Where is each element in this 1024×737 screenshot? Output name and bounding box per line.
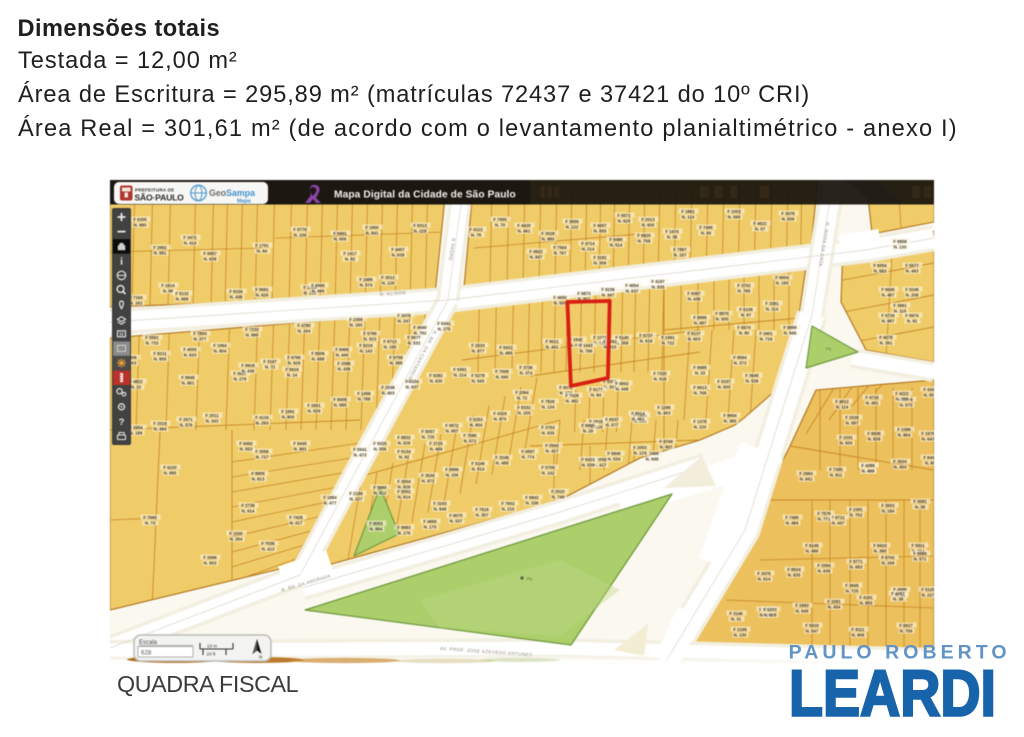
- svg-text:GeoSampa: GeoSampa: [209, 188, 255, 198]
- svg-text:F 6537: F 6537: [605, 417, 619, 422]
- svg-text:F 4716: F 4716: [865, 395, 879, 400]
- svg-text:N. 587: N. 587: [846, 421, 859, 426]
- svg-text:F 2662: F 2662: [153, 245, 167, 250]
- svg-text:F 2696: F 2696: [203, 555, 217, 560]
- svg-text:F 9918: F 9918: [241, 363, 255, 368]
- svg-text:N. 725: N. 725: [422, 435, 435, 440]
- svg-text:N. 347: N. 347: [602, 293, 615, 298]
- svg-text:N. 637: N. 637: [406, 385, 419, 390]
- svg-text:F 6796: F 6796: [287, 355, 301, 360]
- svg-text:F 5919: F 5919: [805, 623, 819, 628]
- svg-text:F 7804: F 7804: [193, 331, 207, 336]
- svg-text:F 2013: F 2013: [641, 217, 655, 222]
- svg-text:N. 848: N. 848: [434, 507, 447, 512]
- svg-text:F 6825: F 6825: [637, 233, 651, 238]
- svg-text:N. 169: N. 169: [882, 561, 895, 566]
- svg-text:F 4078: F 4078: [879, 335, 893, 340]
- svg-text:N. 505: N. 505: [716, 317, 729, 322]
- svg-text:N. 788: N. 788: [358, 397, 371, 402]
- svg-text:N. 208: N. 208: [906, 293, 919, 298]
- svg-text:F 3181: F 3181: [593, 255, 607, 260]
- svg-text:N. 716: N. 716: [760, 337, 773, 342]
- svg-text:F 9779: F 9779: [293, 227, 307, 232]
- svg-text:N. 683: N. 683: [850, 565, 863, 570]
- svg-text:N. 495: N. 495: [500, 351, 513, 356]
- svg-text:N. 461: N. 461: [518, 229, 531, 234]
- svg-text:F 9899: F 9899: [783, 325, 797, 330]
- svg-text:N. 618: N. 618: [640, 339, 653, 344]
- svg-text:F 4222: F 4222: [895, 391, 909, 396]
- svg-text:N. 499: N. 499: [862, 469, 875, 474]
- svg-text:N. 928: N. 928: [398, 485, 411, 490]
- svg-text:N. 985: N. 985: [164, 471, 177, 476]
- svg-text:N. 847: N. 847: [530, 255, 543, 260]
- svg-text:N. 907: N. 907: [660, 445, 673, 450]
- svg-text:N. 98: N. 98: [163, 289, 174, 294]
- svg-text:N. 749: N. 749: [552, 495, 565, 500]
- svg-text:N. 92: N. 92: [907, 319, 918, 324]
- svg-text:N. 73: N. 73: [145, 521, 156, 526]
- svg-text:F 4612: F 4612: [835, 399, 849, 404]
- svg-text:LEARDI: LEARDI: [789, 658, 996, 730]
- svg-text:F 7616: F 7616: [475, 507, 489, 512]
- svg-text:F 3147: F 3147: [263, 359, 277, 364]
- svg-text:N. 941: N. 941: [366, 231, 379, 236]
- svg-text:F 9282: F 9282: [429, 373, 443, 378]
- svg-text:N. 106: N. 106: [294, 233, 307, 238]
- svg-text:F 8070: F 8070: [449, 513, 463, 518]
- svg-text:F 7485: F 7485: [785, 515, 799, 520]
- svg-text:N. 417: N. 417: [290, 521, 303, 526]
- svg-text:N. 388: N. 388: [390, 361, 403, 366]
- svg-text:F 7008: F 7008: [495, 369, 509, 374]
- svg-text:N. 31: N. 31: [731, 617, 742, 622]
- svg-text:F 5840: F 5840: [607, 451, 621, 456]
- svg-text:F 1642: F 1642: [569, 337, 583, 342]
- svg-text:F 6447: F 6447: [923, 455, 934, 460]
- svg-text:N. 97: N. 97: [741, 313, 752, 318]
- svg-text:F 3736: F 3736: [519, 365, 533, 370]
- svg-text:N. 114: N. 114: [682, 215, 695, 220]
- svg-text:N. 454: N. 454: [894, 465, 907, 470]
- svg-text:N. 804: N. 804: [214, 349, 227, 354]
- svg-text:N. 229: N. 229: [414, 229, 427, 234]
- svg-text:F 6995: F 6995: [581, 423, 595, 428]
- svg-text:N. 655: N. 655: [594, 229, 607, 234]
- svg-text:F 6966: F 6966: [311, 283, 325, 288]
- svg-text:F 9111: F 9111: [852, 627, 866, 632]
- svg-text:F 9236: F 9236: [601, 287, 615, 292]
- svg-text:N. 835: N. 835: [652, 285, 665, 290]
- svg-text:F 6737: F 6737: [639, 333, 653, 338]
- svg-text:N. 70: N. 70: [495, 223, 506, 228]
- svg-text:F 1861: F 1861: [681, 209, 695, 214]
- svg-text:F 1474: F 1474: [665, 229, 679, 234]
- svg-text:F 5577: F 5577: [905, 263, 919, 268]
- svg-text:N. 84: N. 84: [591, 393, 602, 398]
- svg-text:F 4657: F 4657: [593, 223, 607, 228]
- svg-text:N. 514: N. 514: [610, 243, 623, 248]
- svg-text:N. 774: N. 774: [522, 455, 535, 460]
- svg-text:N. 585: N. 585: [334, 403, 347, 408]
- svg-text:N. 380: N. 380: [724, 419, 737, 424]
- svg-text:F 7164: F 7164: [129, 295, 143, 300]
- svg-text:N. 38: N. 38: [893, 597, 904, 602]
- svg-text:F 3530: F 3530: [421, 473, 435, 478]
- svg-text:N. 606: N. 606: [334, 237, 347, 242]
- svg-text:N. 227: N. 227: [350, 497, 363, 502]
- svg-text:F 5146: F 5146: [471, 461, 485, 466]
- svg-text:N. 60: N. 60: [701, 231, 712, 236]
- svg-text:N. 785: N. 785: [738, 289, 751, 294]
- svg-text:F 1296: F 1296: [657, 405, 671, 410]
- svg-text:N. 486: N. 486: [806, 549, 819, 554]
- svg-text:Mapa Digital da Cidade de São: Mapa Digital da Cidade de São Paulo: [334, 190, 516, 201]
- svg-text:F 1443: F 1443: [579, 343, 593, 348]
- svg-text:N. 786: N. 786: [580, 349, 593, 354]
- svg-text:F 5541: F 5541: [353, 447, 367, 452]
- svg-text:F 8771: F 8771: [849, 559, 863, 564]
- svg-text:N. 503: N. 503: [204, 561, 217, 566]
- svg-text:N. 977: N. 977: [472, 349, 485, 354]
- svg-text:N. 556: N. 556: [374, 447, 387, 452]
- svg-text:F 4000: F 4000: [183, 347, 197, 352]
- svg-text:N. 494: N. 494: [154, 427, 167, 432]
- svg-text:?: ?: [119, 417, 125, 428]
- svg-text:F 8408: F 8408: [333, 397, 347, 402]
- svg-text:N. 125: N. 125: [634, 451, 647, 456]
- svg-text:N. 176: N. 176: [398, 531, 411, 536]
- svg-text:N. 491: N. 491: [866, 401, 879, 406]
- svg-text:N. 812: N. 812: [374, 491, 387, 496]
- svg-text:F 9011: F 9011: [545, 339, 559, 344]
- svg-text:F 4622: F 4622: [753, 221, 767, 226]
- svg-text:N. 143: N. 143: [360, 349, 373, 354]
- svg-text:F 4134: F 4134: [255, 415, 269, 420]
- svg-text:N. 752: N. 752: [850, 513, 863, 518]
- svg-text:F 5337: F 5337: [717, 379, 731, 384]
- svg-text:N. 768: N. 768: [694, 391, 707, 396]
- svg-text:F 4942: F 4942: [615, 381, 629, 386]
- svg-text:N. 454: N. 454: [828, 605, 841, 610]
- svg-text:F 3394: F 3394: [817, 563, 831, 568]
- svg-text:N. 767: N. 767: [554, 251, 567, 256]
- svg-text:F 2391: F 2391: [849, 507, 863, 512]
- svg-text:N. 80: N. 80: [739, 331, 750, 336]
- svg-text:N. 355: N. 355: [896, 397, 909, 402]
- svg-text:F 2964: F 2964: [799, 471, 813, 476]
- svg-text:F 9137: F 9137: [687, 331, 701, 336]
- svg-text:N. 165: N. 165: [384, 345, 397, 350]
- svg-text:F 9492: F 9492: [239, 441, 253, 446]
- svg-text:N. 954: N. 954: [470, 423, 483, 428]
- svg-text:F 2971: F 2971: [179, 417, 193, 422]
- svg-text:F 3961: F 3961: [893, 303, 907, 308]
- svg-text:Escala: Escala: [139, 640, 158, 646]
- svg-text:F 4420: F 4420: [517, 223, 531, 228]
- svg-text:F 9713: F 9713: [383, 339, 397, 344]
- svg-text:N. 572: N. 572: [464, 439, 477, 444]
- svg-text:N. 164: N. 164: [298, 329, 311, 334]
- svg-text:F 2738: F 2738: [241, 503, 255, 508]
- svg-text:N. 473: N. 473: [354, 453, 367, 458]
- svg-text:F 3386: F 3386: [337, 361, 351, 366]
- svg-text:N. 279: N. 279: [234, 377, 247, 382]
- svg-text:F 1233: F 1233: [763, 607, 777, 612]
- svg-text:N. 438: N. 438: [688, 297, 701, 302]
- svg-text:F 6220: F 6220: [163, 465, 177, 470]
- svg-text:N. 504: N. 504: [924, 393, 934, 398]
- svg-text:F 8104: F 8104: [229, 289, 243, 294]
- svg-text:F 1417: F 1417: [343, 251, 357, 256]
- svg-text:F 1614: F 1614: [161, 283, 175, 288]
- svg-text:N. 293: N. 293: [256, 421, 269, 426]
- svg-text:F 8832: F 8832: [397, 435, 411, 440]
- svg-text:N. 555: N. 555: [554, 301, 567, 306]
- svg-text:N. 571: N. 571: [914, 557, 927, 562]
- svg-text:N. 220: N. 220: [694, 425, 707, 430]
- svg-text:F 2359: F 2359: [349, 317, 363, 322]
- svg-text:F 7580: F 7580: [463, 433, 477, 438]
- svg-text:F 4822: F 4822: [129, 379, 143, 384]
- svg-text:F 5960: F 5960: [373, 485, 387, 490]
- svg-text:N. 532: N. 532: [408, 341, 421, 346]
- svg-text:N. 214: N. 214: [582, 247, 595, 252]
- svg-text:F 5619: F 5619: [285, 367, 299, 372]
- svg-text:N. 92: N. 92: [399, 455, 410, 460]
- svg-text:N. 835: N. 835: [788, 573, 801, 578]
- svg-text:F 4650: F 4650: [553, 295, 567, 300]
- svg-text:F 8514: F 8514: [631, 411, 645, 416]
- svg-text:F 6604: F 6604: [775, 275, 789, 280]
- svg-text:F 8905: F 8905: [251, 471, 265, 476]
- svg-text:N. 82: N. 82: [345, 257, 356, 262]
- svg-text:F 5552: F 5552: [397, 489, 411, 494]
- svg-text:F 3319: F 3319: [153, 421, 167, 426]
- svg-text:N. 570: N. 570: [900, 403, 913, 408]
- svg-text:F 3478: F 3478: [781, 211, 795, 216]
- svg-text:F 8474: F 8474: [737, 325, 751, 330]
- svg-text:N. 914: N. 914: [472, 467, 485, 472]
- svg-text:F 2053: F 2053: [633, 445, 647, 450]
- svg-text:F 5799: F 5799: [363, 331, 377, 336]
- svg-text:F 3753: F 3753: [541, 425, 555, 430]
- svg-text:F 3725: F 3725: [429, 441, 443, 446]
- svg-text:N. 114: N. 114: [766, 307, 779, 312]
- svg-text:N. 805: N. 805: [154, 357, 167, 362]
- svg-text:F 7499: F 7499: [699, 225, 713, 230]
- svg-text:N. 413: N. 413: [262, 547, 275, 552]
- svg-text:F 9572: F 9572: [445, 423, 459, 428]
- svg-text:N. 717: N. 717: [256, 455, 269, 460]
- svg-text:F 1930: F 1930: [229, 531, 243, 536]
- svg-text:N. 487: N. 487: [694, 321, 707, 326]
- svg-text:N. 461: N. 461: [632, 417, 645, 422]
- svg-text:N. 864: N. 864: [898, 433, 911, 438]
- svg-text:N. 946: N. 946: [784, 331, 797, 336]
- svg-text:i: i: [120, 256, 123, 267]
- svg-text:N. 980: N. 980: [134, 223, 147, 228]
- svg-text:N. 980: N. 980: [542, 237, 555, 242]
- svg-text:F 1456: F 1456: [357, 391, 371, 396]
- svg-text:F 7428: F 7428: [289, 515, 303, 520]
- svg-text:F 7536: F 7536: [261, 541, 275, 546]
- svg-text:F 6571: F 6571: [617, 213, 631, 218]
- svg-text:N. 488: N. 488: [496, 461, 509, 466]
- svg-text:N. 540: N. 540: [472, 379, 485, 384]
- svg-text:F 9873: F 9873: [577, 291, 591, 296]
- svg-text:F 3702: F 3702: [737, 283, 751, 288]
- svg-text:F 7955: F 7955: [493, 217, 507, 222]
- svg-text:N. 357: N. 357: [476, 513, 489, 518]
- svg-text:N. 813: N. 813: [252, 477, 265, 482]
- svg-text:N. 811: N. 811: [830, 473, 843, 478]
- svg-text:N. 523: N. 523: [364, 337, 377, 342]
- svg-text:N. 190: N. 190: [350, 323, 363, 328]
- svg-text:N. 130: N. 130: [894, 245, 907, 250]
- svg-text:N. 463: N. 463: [382, 391, 395, 396]
- svg-text:N. 156: N. 156: [446, 473, 459, 478]
- svg-text:F 6999: F 6999: [445, 467, 459, 472]
- svg-text:N. 336: N. 336: [526, 501, 539, 506]
- svg-text:F 3243: F 3243: [433, 501, 447, 506]
- svg-text:F 5057: F 5057: [421, 429, 435, 434]
- svg-text:F 9391: F 9391: [453, 367, 467, 372]
- svg-text:F 9313: F 9313: [413, 223, 427, 228]
- svg-text:N. 186: N. 186: [130, 431, 143, 436]
- svg-text:N. 583: N. 583: [874, 269, 887, 274]
- svg-text:F 5278: F 5278: [471, 373, 485, 378]
- svg-text:N. 941: N. 941: [800, 477, 813, 482]
- svg-text:N. 725: N. 725: [846, 589, 859, 594]
- svg-text:F 3281: F 3281: [827, 599, 841, 604]
- svg-text:N. 929: N. 929: [288, 361, 301, 366]
- svg-text:F 8870: F 8870: [715, 311, 729, 316]
- svg-text:10 m: 10 m: [207, 644, 217, 649]
- svg-text:Pq: Pq: [826, 346, 831, 351]
- svg-text:N. 130: N. 130: [734, 633, 747, 638]
- svg-text:F 3476: F 3476: [757, 571, 771, 576]
- svg-text:F 2491: F 2491: [661, 335, 675, 340]
- svg-text:N. 626: N. 626: [256, 293, 269, 298]
- svg-text:F 3012: F 3012: [381, 275, 395, 280]
- svg-text:F 4191: F 4191: [859, 595, 873, 600]
- svg-text:F 1791: F 1791: [255, 243, 269, 248]
- svg-text:N. 493: N. 493: [906, 269, 919, 274]
- svg-text:N. 633: N. 633: [184, 353, 197, 358]
- svg-text:F 8053: F 8053: [369, 521, 383, 526]
- svg-text:N. 574: N. 574: [360, 283, 373, 288]
- svg-text:F 1003: F 1003: [727, 209, 741, 214]
- svg-text:F 1064: F 1064: [213, 343, 227, 348]
- svg-text:F 6109: F 6109: [739, 307, 753, 312]
- svg-text:F 7365: F 7365: [829, 467, 843, 472]
- svg-text:N. 500: N. 500: [718, 385, 731, 390]
- svg-text:F 2601: F 2601: [307, 403, 321, 408]
- svg-text:N. 590: N. 590: [728, 215, 741, 220]
- svg-text:F 9445: F 9445: [293, 441, 307, 446]
- svg-text:N. 870: N. 870: [494, 417, 507, 422]
- svg-text:F 6305: F 6305: [133, 217, 147, 222]
- svg-text:F 6974: F 6974: [905, 313, 919, 318]
- svg-text:F 9654: F 9654: [723, 413, 737, 418]
- svg-text:F 3081: F 3081: [913, 499, 927, 504]
- svg-text:M: M: [119, 332, 123, 338]
- svg-text:N. 14: N. 14: [287, 373, 298, 378]
- svg-text:N. 33: N. 33: [695, 371, 706, 376]
- svg-text:N. 391: N. 391: [880, 341, 893, 346]
- svg-text:N. 643: N. 643: [922, 437, 934, 442]
- svg-text:N. 500: N. 500: [840, 441, 853, 446]
- svg-text:F 8506: F 8506: [311, 351, 325, 356]
- svg-text:F 6613: F 6613: [693, 385, 707, 390]
- svg-text:N. 914: N. 914: [242, 509, 255, 514]
- svg-text:N. 417: N. 417: [546, 449, 559, 454]
- svg-text:N. 547: N. 547: [806, 629, 819, 634]
- svg-text:F 6341: F 6341: [437, 321, 451, 326]
- svg-text:F 8983: F 8983: [397, 525, 411, 530]
- svg-text:F 7576: F 7576: [817, 511, 831, 516]
- svg-text:N. 377: N. 377: [194, 337, 207, 342]
- svg-text:F 2683: F 2683: [795, 603, 809, 608]
- svg-text:N. 438: N. 438: [230, 295, 243, 300]
- svg-text:F 1378: F 1378: [693, 419, 707, 424]
- svg-text:N. 529: N. 529: [308, 409, 321, 414]
- svg-text:N. 614: N. 614: [758, 577, 771, 582]
- svg-text:F 8211: F 8211: [153, 351, 167, 356]
- svg-text:N. 414: N. 414: [184, 241, 197, 246]
- svg-text:N. 447: N. 447: [832, 521, 845, 526]
- svg-text:F 2038: F 2038: [381, 385, 395, 390]
- svg-text:F 2389: F 2389: [897, 427, 911, 432]
- svg-text:N. 29: N. 29: [583, 429, 594, 434]
- svg-text:F 5253: F 5253: [469, 417, 483, 422]
- svg-text:N. 987: N. 987: [882, 319, 895, 324]
- svg-text:N. 142: N. 142: [542, 471, 555, 476]
- svg-text:N. 914: N. 914: [398, 495, 411, 500]
- svg-text:N. 157: N. 157: [674, 253, 687, 258]
- svg-text:F 7428: F 7428: [565, 393, 579, 398]
- svg-text:N. 972: N. 972: [422, 479, 435, 484]
- svg-text:F 3471: F 3471: [183, 235, 197, 240]
- svg-text:F 7902: F 7902: [501, 501, 515, 506]
- svg-text:F 9577: F 9577: [407, 335, 421, 340]
- svg-text:F 7564: F 7564: [553, 245, 567, 250]
- svg-text:F 5709: F 5709: [541, 465, 555, 470]
- svg-text:N. 162: N. 162: [130, 301, 143, 306]
- svg-text:F 4348: F 4348: [923, 387, 934, 392]
- svg-text:F 3454: F 3454: [129, 425, 143, 430]
- svg-text:N. 484: N. 484: [786, 521, 799, 526]
- svg-text:N. 462: N. 462: [566, 399, 579, 404]
- svg-text:F 7233: F 7233: [245, 327, 259, 332]
- svg-text:F 8945: F 8945: [181, 375, 195, 380]
- svg-text:N. 38: N. 38: [915, 505, 926, 510]
- svg-text:F 4319: F 4319: [493, 411, 507, 416]
- svg-text:F 2064: F 2064: [515, 390, 529, 395]
- svg-text:N. 495: N. 495: [312, 289, 325, 294]
- svg-text:F 9758: F 9758: [389, 355, 403, 360]
- svg-text:N. 214: N. 214: [454, 373, 467, 378]
- svg-text:F 9219: F 9219: [359, 343, 373, 348]
- svg-text:F 9989: F 9989: [913, 551, 927, 556]
- svg-text:N. 688: N. 688: [312, 357, 325, 362]
- svg-text:F 2533: F 2533: [471, 343, 485, 348]
- svg-text:N. 227: N. 227: [922, 593, 934, 598]
- svg-text:N. 828: N. 828: [868, 437, 881, 442]
- svg-text:N. 441: N. 441: [546, 345, 559, 350]
- svg-text:20 ft: 20 ft: [207, 652, 217, 657]
